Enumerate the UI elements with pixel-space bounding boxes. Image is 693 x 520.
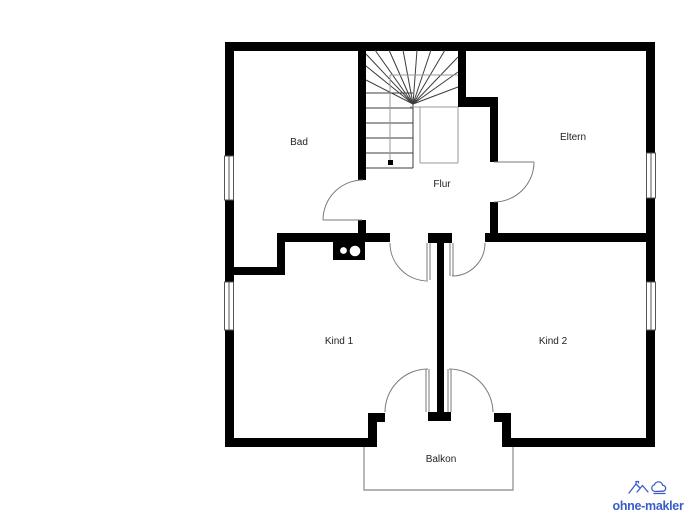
door-balcony-left xyxy=(385,369,429,412)
window-bad xyxy=(225,156,234,200)
wall-flur-south-right xyxy=(485,233,655,242)
door-arc xyxy=(494,162,534,202)
wall-center-cap-top xyxy=(428,233,452,243)
door-kind1 xyxy=(390,243,430,281)
balcony-sill-left xyxy=(368,413,385,422)
wall-bad-stair xyxy=(358,42,366,180)
wall-left xyxy=(225,42,234,447)
wall-center-cap-bottom xyxy=(428,412,451,421)
wall-flur-south-left xyxy=(277,233,390,242)
wall-top xyxy=(225,42,655,51)
window-eltern xyxy=(647,153,656,198)
wall-bad-door-stub xyxy=(358,220,366,233)
room-label-eltern: Eltern xyxy=(560,132,586,143)
door-balcony-right xyxy=(448,369,493,412)
staircase xyxy=(366,50,458,168)
door-arc xyxy=(385,369,428,412)
wall-eltern-upper xyxy=(490,107,498,162)
floorplan-canvas: Bad Eltern Flur Kind 1 Kind 2 Balkon xyxy=(0,0,693,520)
room-label-flur: Flur xyxy=(433,179,451,190)
balcony-sill-right xyxy=(494,413,511,422)
wall-bottom-left xyxy=(225,438,377,447)
shaft-symbol xyxy=(333,242,365,260)
room-label-bad: Bad xyxy=(290,137,308,148)
wall-bottom-right xyxy=(502,438,655,447)
room-label-balkon: Balkon xyxy=(426,454,457,465)
mountains-and-cloud-icon xyxy=(627,479,669,495)
room-label-kind2: Kind 2 xyxy=(539,336,568,347)
logo-text: ohne-makler xyxy=(604,500,692,513)
floorplan-screen: Bad Eltern Flur Kind 1 Kind 2 Balkon ohn… xyxy=(0,0,693,520)
room-label-kind1: Kind 1 xyxy=(325,336,354,347)
door-kind2 xyxy=(450,243,485,276)
door-arc xyxy=(449,369,493,412)
inner-walls xyxy=(225,42,655,421)
shaft-circle-small xyxy=(340,247,347,254)
door-arc xyxy=(452,243,485,276)
window-kind1 xyxy=(225,282,234,330)
wall-stair-connector xyxy=(458,97,498,107)
doors xyxy=(323,162,534,412)
door-eltern xyxy=(494,162,534,202)
ohne-makler-logo: ohne-makler xyxy=(604,479,692,513)
wall-center-bar xyxy=(437,243,444,413)
shaft-circle-large xyxy=(350,246,361,257)
stair-direction-dot xyxy=(388,160,393,165)
door-arc xyxy=(390,243,428,281)
door-bad xyxy=(323,180,363,220)
wall-bad-jog xyxy=(277,233,285,275)
staircase-walkline xyxy=(390,75,458,163)
door-arc xyxy=(323,180,363,220)
wall-bad-south xyxy=(225,267,285,275)
window-kind2 xyxy=(647,282,656,330)
wall-right xyxy=(646,42,655,447)
